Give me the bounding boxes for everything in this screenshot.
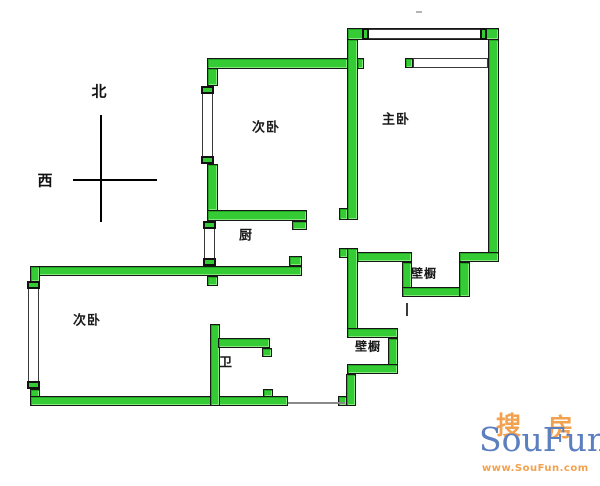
master-inner-shelf bbox=[413, 58, 488, 68]
room-label-bedroom-secondary-upper: 次卧 bbox=[252, 117, 280, 136]
kitchen-west-window-cap-start bbox=[203, 221, 216, 229]
middle-south-wall-stub bbox=[207, 276, 218, 286]
master-north-window-cap-start bbox=[362, 28, 369, 40]
kitchen-west-window-cap-end bbox=[203, 258, 216, 266]
compass-west-label: 西 bbox=[37, 170, 52, 191]
closet-upper-west-wall bbox=[357, 252, 412, 262]
room-label-kitchen: 厨 bbox=[239, 225, 253, 244]
bedroom2-north-wall bbox=[207, 58, 348, 69]
kitchen-north-wall-tab bbox=[292, 221, 307, 230]
room-label-closet-upper: 壁橱 bbox=[411, 265, 437, 282]
bedroom2-west-window-cap-start bbox=[201, 86, 214, 94]
compass-horizontal-line bbox=[73, 179, 157, 181]
bedroom3-west-wall-upper bbox=[30, 266, 40, 282]
room-label-closet-lower: 壁橱 bbox=[355, 338, 381, 355]
room-label-bedroom-master: 主卧 bbox=[382, 109, 410, 128]
closet-door-mark bbox=[406, 303, 408, 316]
master-north-window bbox=[362, 29, 487, 39]
middle-south-wall-tab bbox=[289, 256, 302, 266]
threshold-line bbox=[288, 402, 345, 404]
compass-vertical-line bbox=[100, 115, 102, 222]
bedroom2-west-wall-upper bbox=[207, 68, 218, 86]
bathroom-north-wall bbox=[218, 338, 270, 348]
compass-north-label: 北 bbox=[91, 81, 106, 102]
master-north-window-cap-end bbox=[480, 28, 487, 40]
bedroom2-west-window-cap-end bbox=[201, 156, 214, 164]
hall-east-wall-upper-tab bbox=[339, 248, 348, 258]
middle-south-wall bbox=[30, 266, 302, 276]
closet-upper-east-wall bbox=[459, 252, 499, 262]
bathroom-north-wall-tab bbox=[262, 348, 272, 357]
bedroom2-west-window bbox=[202, 86, 213, 164]
watermark-url: www.SouFun.com bbox=[482, 463, 589, 474]
soufun-watermark: 搜 房 SouFun www.SouFun.com bbox=[478, 408, 596, 480]
bedroom3-south-wall bbox=[30, 396, 288, 406]
bedroom2-north-wall-stub bbox=[357, 58, 364, 69]
room-label-bathroom: 卫 bbox=[219, 352, 233, 371]
bedroom3-south-wall-tab bbox=[263, 389, 273, 397]
hall-east-wall-lower bbox=[346, 374, 356, 406]
bedroom2-west-wall-lower bbox=[207, 164, 218, 211]
bedroom3-west-window bbox=[28, 281, 39, 389]
bedroom3-west-window-cap-end bbox=[27, 381, 40, 389]
room-label-bedroom-secondary-lower: 次卧 bbox=[73, 310, 101, 329]
master-east-wall bbox=[488, 39, 499, 262]
kitchen-north-wall bbox=[207, 210, 307, 221]
bedroom3-west-window-cap-start bbox=[27, 281, 40, 289]
master-shelf-cap bbox=[405, 58, 413, 68]
master-west-wall-foot bbox=[339, 208, 348, 220]
hall-east-wall-lower-foot bbox=[338, 396, 347, 406]
closet-upper-right-bar bbox=[459, 262, 470, 297]
floor-plan: 次卧主卧厨次卧卫壁橱壁橱 北 西 搜 房 SouFun www.SouFun.c… bbox=[0, 0, 600, 486]
closet-lower-south-bar bbox=[347, 364, 398, 374]
watermark-brand-text: SouFun bbox=[479, 421, 600, 459]
closet-lower-north-bar bbox=[347, 328, 398, 338]
stray-mark bbox=[416, 11, 422, 13]
